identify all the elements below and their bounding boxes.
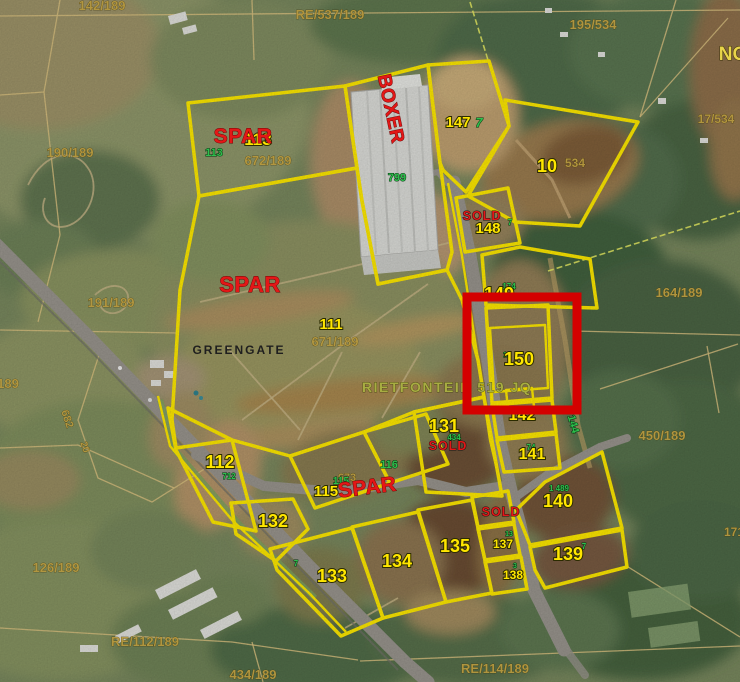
- green-number-799: 799: [388, 172, 406, 184]
- place-label-greengate: GREENGATE: [192, 343, 285, 357]
- cadastral-label-re-112-189: RE/112/189: [111, 634, 179, 649]
- lot-number-150: 150: [504, 349, 534, 369]
- green-number-7: 7: [294, 559, 299, 568]
- sold-badge-sold: SOLD: [463, 209, 502, 223]
- cadastral-label-671-189: 671/189: [312, 334, 359, 349]
- cadastral-label-434-189: 434/189: [230, 667, 277, 682]
- cadastral-label-195-534: 195/534: [570, 17, 618, 32]
- lot-number-134: 134: [382, 551, 412, 571]
- lot-number-112: 112: [205, 452, 234, 472]
- cadastral-label-142-189: 142/189: [79, 0, 126, 13]
- lot-number-10: 10: [537, 156, 557, 176]
- brand-label-spar: SPAR: [214, 125, 273, 148]
- cadastral-label-190-189: 190/189: [47, 145, 94, 160]
- lot-number-133: 133: [317, 566, 347, 586]
- lot-number-131: 131: [429, 416, 459, 436]
- sold-badge-sold: SOLD: [429, 439, 468, 453]
- lot-number-138: 138: [503, 568, 523, 582]
- lot-number-147: 147: [445, 114, 470, 131]
- lot-number-132: 132: [258, 511, 288, 531]
- cadastral-label-126-189: 126/189: [33, 560, 80, 575]
- lot-number-140: 140: [543, 491, 573, 511]
- lot-number-135: 135: [440, 536, 470, 556]
- cadastral-label-534: 534: [565, 156, 585, 170]
- edge-label-no: NO: [719, 44, 740, 65]
- green-number-113: 113: [205, 147, 223, 159]
- aerial-map: 142/189RE/537/189195/534190/189672/18919…: [0, 0, 740, 682]
- cadastral-label-164-189: 164/189: [656, 285, 703, 300]
- cadastral-label-672-189: 672/189: [245, 153, 292, 168]
- cadastral-label-191-189: 191/189: [88, 295, 135, 310]
- lot-number-137: 137: [493, 537, 513, 551]
- green-number-116: 116: [380, 459, 398, 471]
- green-number-712: 712: [222, 472, 236, 481]
- map-canvas: 142/189RE/537/189195/534190/189672/18919…: [0, 0, 740, 682]
- cadastral-label-450-189: 450/189: [639, 428, 686, 443]
- sold-badge-sold: SOLD: [482, 505, 521, 519]
- green-number-7: 7: [508, 218, 513, 227]
- lot-number-139: 139: [553, 544, 583, 564]
- grain-overlay: [0, 0, 740, 682]
- cadastral-label-189: 189: [0, 376, 19, 391]
- green-number-7: 7: [475, 115, 483, 130]
- edge-labels: NO: [719, 44, 740, 65]
- cadastral-label-re-537-189: RE/537/189: [296, 7, 365, 22]
- cadastral-label-re-114-189: RE/114/189: [461, 661, 529, 676]
- lot-number-115: 115: [314, 483, 338, 500]
- lot-number-141: 141: [519, 446, 546, 463]
- locality-label-rietfontein-519-jq: RIETFONTEIN 519 JQ: [362, 379, 532, 395]
- lot-number-111: 111: [319, 316, 342, 333]
- brand-label-spar: SPAR: [219, 272, 281, 297]
- cadastral-label-171: 171: [724, 525, 740, 539]
- cadastral-label-17-534: 17/534: [698, 112, 735, 126]
